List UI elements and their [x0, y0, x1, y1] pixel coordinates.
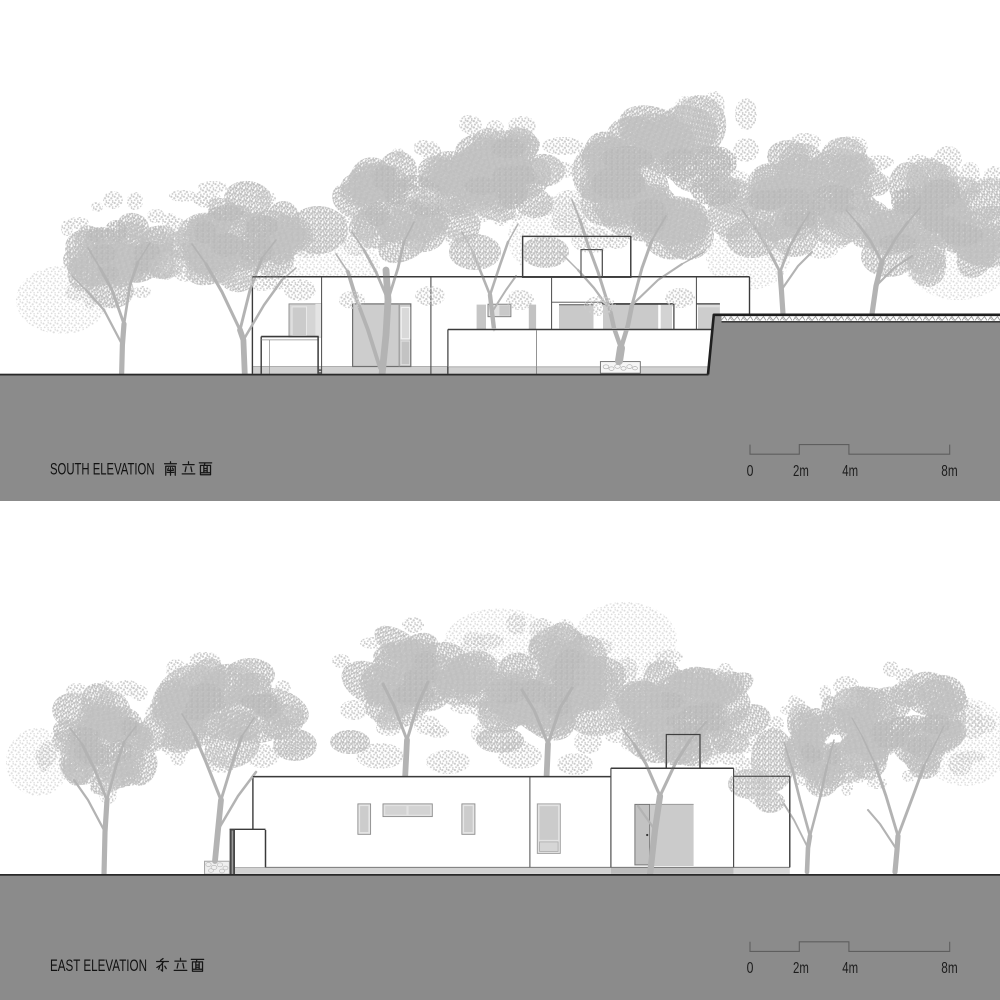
- svg-text:8m: 8m: [941, 463, 957, 480]
- svg-text:2m: 2m: [793, 960, 809, 977]
- svg-text:SOUTH ELEVATION: SOUTH ELEVATION: [50, 460, 155, 479]
- svg-text:0: 0: [747, 960, 754, 977]
- svg-text:0: 0: [747, 463, 754, 480]
- svg-text:2m: 2m: [793, 463, 809, 480]
- svg-text:8m: 8m: [941, 960, 957, 977]
- svg-text:4m: 4m: [842, 463, 858, 480]
- svg-text:EAST ELEVATION: EAST ELEVATION: [50, 956, 147, 975]
- svg-text:4m: 4m: [842, 960, 858, 977]
